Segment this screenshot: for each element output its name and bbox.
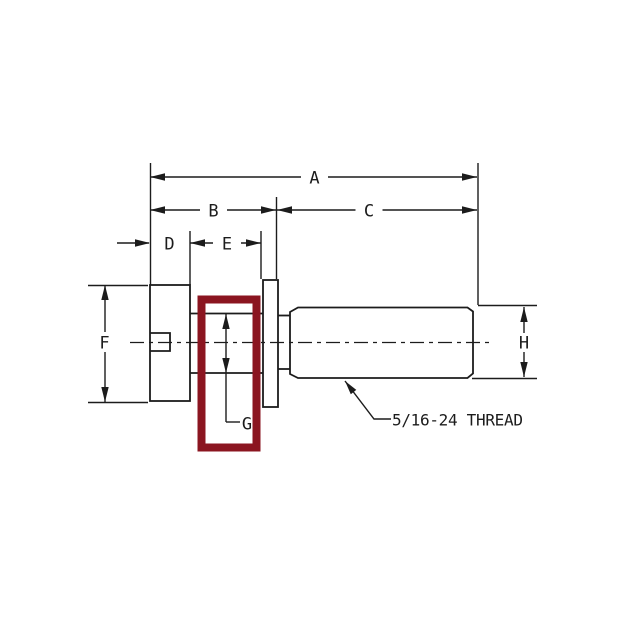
- technical-drawing-page: A B C D E: [0, 0, 620, 620]
- dimension-label-a: A: [309, 169, 319, 189]
- dimension-label-d: D: [164, 235, 174, 255]
- dimension-label-e: E: [222, 235, 232, 255]
- arrowhead-down: [222, 358, 229, 373]
- dimension-a: A: [150, 167, 477, 189]
- dimension-label-f: F: [99, 334, 109, 354]
- dimension-label-h: H: [519, 334, 529, 354]
- arrowhead-right: [261, 206, 276, 214]
- thread-leader-arrowhead: [345, 381, 356, 394]
- dimension-c: C: [277, 200, 477, 222]
- arrowhead-up: [101, 285, 108, 300]
- arrowhead-left: [150, 206, 165, 214]
- arrowhead-down: [101, 387, 108, 402]
- arrowhead-right: [462, 206, 477, 214]
- thread-note: 5/16-24 THREAD: [392, 411, 523, 430]
- dimension-f: F: [95, 285, 115, 402]
- dimension-label-g: G: [242, 415, 252, 435]
- flange: [263, 280, 278, 407]
- arrowhead-up: [520, 307, 527, 322]
- dimension-d: D: [117, 235, 175, 255]
- arrowhead-left: [190, 239, 205, 247]
- arrowhead-up: [222, 314, 229, 329]
- dimension-g: G: [222, 314, 252, 435]
- dimension-b: B: [150, 200, 276, 222]
- dimension-label-c: C: [364, 202, 374, 222]
- drawing-canvas: A B C D E: [0, 0, 620, 620]
- screw-part: [130, 280, 494, 407]
- dimension-e: E: [190, 235, 261, 255]
- arrowhead-right: [135, 239, 150, 247]
- arrowhead-left: [277, 206, 292, 214]
- arrowhead-right: [246, 239, 261, 247]
- arrowhead-down: [520, 362, 527, 377]
- dimension-label-b: B: [208, 202, 218, 222]
- arrowhead-left: [150, 173, 165, 181]
- thread-callout: 5/16-24 THREAD: [345, 381, 523, 430]
- arrowhead-right: [462, 173, 477, 181]
- dimension-h: H: [514, 307, 534, 377]
